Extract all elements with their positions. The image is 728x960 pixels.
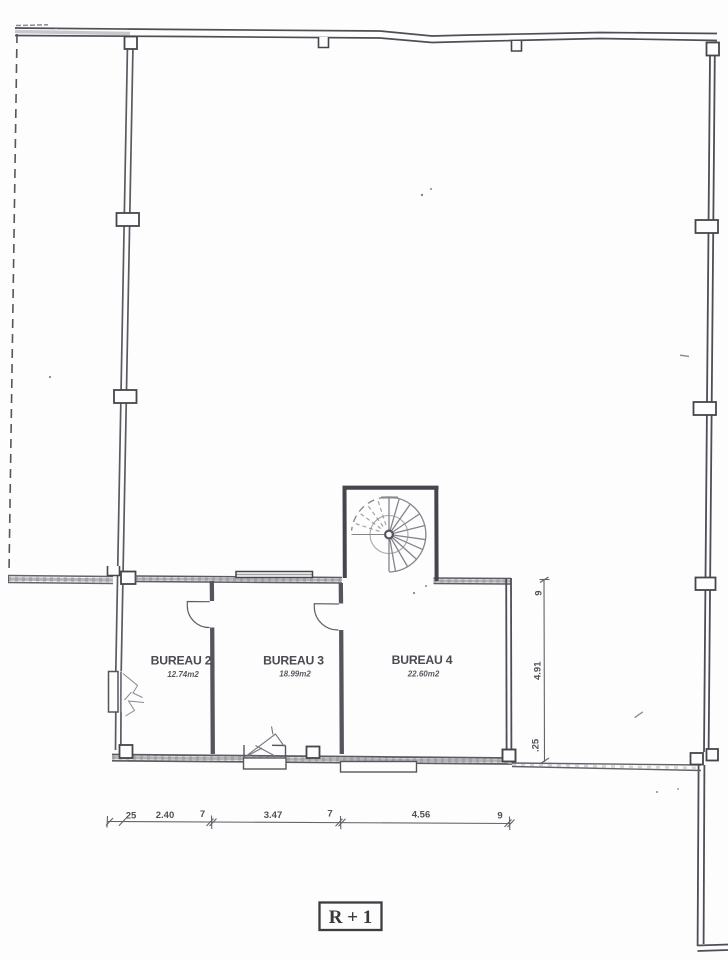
svg-text:.25: .25 [531, 738, 542, 752]
svg-text:2.40: 2.40 [156, 810, 175, 821]
svg-text:BUREAU 4: BUREAU 4 [392, 653, 453, 667]
svg-text:9: 9 [497, 811, 502, 822]
svg-text:12.74m2: 12.74m2 [167, 670, 199, 679]
svg-text:22.60m2: 22.60m2 [407, 670, 440, 679]
svg-text:3.47: 3.47 [264, 810, 283, 821]
svg-text:25: 25 [126, 811, 137, 822]
svg-text:9: 9 [534, 591, 545, 596]
svg-text:4.56: 4.56 [412, 810, 431, 821]
svg-text:18.99m2: 18.99m2 [279, 670, 311, 679]
svg-text:4.91: 4.91 [533, 661, 544, 680]
svg-text:R + 1: R + 1 [329, 907, 373, 928]
svg-text:BUREAU 2: BUREAU 2 [151, 654, 212, 668]
svg-text:7: 7 [327, 809, 332, 820]
svg-text:7: 7 [200, 809, 205, 820]
svg-text:BUREAU 3: BUREAU 3 [263, 654, 324, 668]
